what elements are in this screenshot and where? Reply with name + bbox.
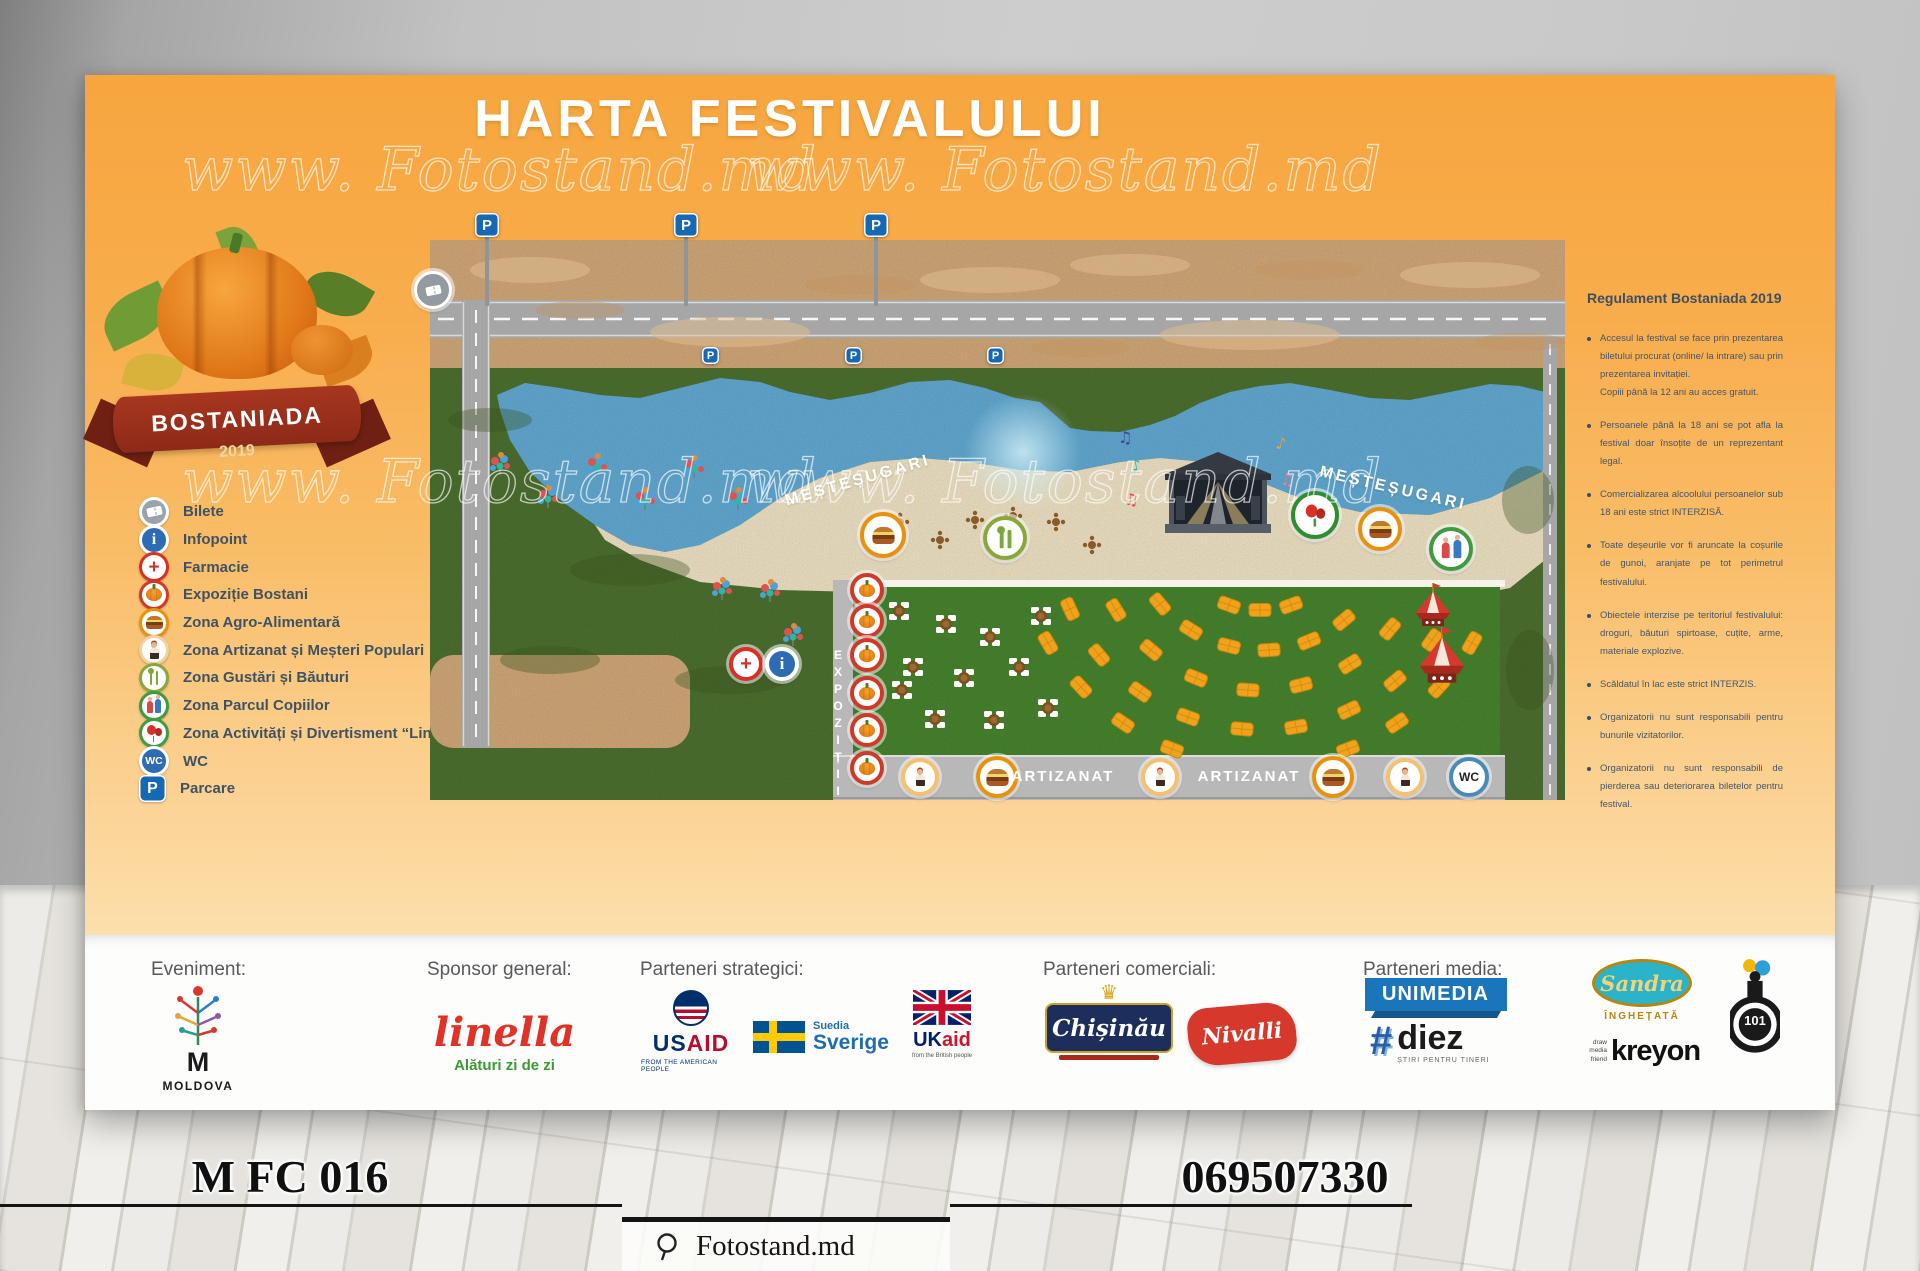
phone-number: 069507330 (1140, 1150, 1430, 1203)
unimedia-logo: UNIMEDIA (1363, 978, 1508, 1011)
sweden-flag-icon (753, 1021, 805, 1053)
legend-item-parcare: P Parcare (139, 775, 464, 803)
site-name: Fotostand.md (696, 1230, 855, 1263)
map-marker-entrance-ticket (414, 271, 452, 309)
stage-icon (1163, 448, 1273, 533)
logo-name: BOSTANIADA (151, 401, 324, 437)
diez-logo: # diez ȘTIRI PENTRU TINERI (1370, 1023, 1500, 1064)
logo-trim (1059, 1055, 1159, 1060)
map-marker-expozitie-bostani (850, 676, 884, 710)
festival-map: P P P P P P + i ARTIZANAT ARTIZ (430, 240, 1565, 800)
parking-sign: P (674, 213, 698, 237)
sponsors-strip: Eveniment: Sponsor general: Parteneri st… (85, 935, 1835, 1110)
artizanat-label: ARTIZANAT (1003, 768, 1123, 785)
section-label-strategic: Parteneri strategici: (640, 959, 804, 981)
parking-sign-small: P (702, 347, 719, 364)
legend-item-artizanat: Zona Artizanat și Meșteri Populari (139, 636, 464, 664)
sign-post (485, 234, 489, 306)
map-marker-expozitie-bostani (850, 751, 884, 785)
usaid-seal-icon (673, 990, 709, 1026)
map-marker-agro-alimentara (1358, 507, 1402, 551)
kids-icon (139, 691, 169, 721)
parking-sign-small: P (987, 347, 1004, 364)
moldova-tree-icon (170, 983, 226, 1047)
info-icon: i (139, 525, 169, 555)
rule-item: Accesul la festival se face prin prezent… (1587, 330, 1783, 402)
rule-item: Persoanele până la 18 ani se pot afla la… (1587, 417, 1783, 471)
map-marker-expozitie-bostani (850, 638, 884, 672)
rule-item: Toate deșeurile vor fi aruncate la coșur… (1587, 537, 1783, 591)
event-field (853, 585, 1500, 755)
usaid-logo: USAID FROM THE AMERICAN PEOPLE (641, 990, 741, 1073)
ticket-icon (139, 497, 169, 527)
nivalli-logo: Nivalli (1187, 1005, 1297, 1063)
sandra-logo: Sandra ÎNGHEȚATĂ (1590, 959, 1694, 1022)
map-marker-linella (1291, 491, 1339, 539)
legend-item-parcul-copiilor: Zona Parcul Copiilor (139, 692, 464, 720)
map-marker-wc: WC (1449, 757, 1489, 797)
parking-sign-small: P (845, 347, 862, 364)
bostaniada-logo: BOSTANIADA 2019 (95, 233, 380, 478)
rules-title: Regulament Bostaniada 2019 (1587, 290, 1783, 306)
hashtag-icon: # (1370, 1023, 1392, 1059)
sweden-logo: Suedia Sverige (753, 1020, 893, 1054)
balloons-icon (139, 718, 169, 748)
music-note-icon: ♫ (1280, 470, 1294, 489)
chisinau-logo: ♛ Chișinău (1043, 983, 1175, 1060)
festival-map-poster: HARTA FESTIVALULUI www. Fotostand.md www… (85, 75, 1835, 1110)
utensils-icon (139, 663, 169, 693)
map-marker-artizanat-person (1386, 758, 1424, 796)
legend-item-linella: Zona Activități și Divertisment “Linella… (139, 720, 464, 748)
map-marker-gustari-bauturi (983, 516, 1027, 560)
legend-item-expozitie: Expoziție Bostani (139, 581, 464, 609)
field-edge (848, 580, 1505, 587)
map-marker-infopoint: i (765, 647, 799, 681)
parking-sign: P (864, 213, 888, 237)
map-marker-expozitie-bostani (850, 604, 884, 638)
music-note-icon: ♫ (1124, 490, 1138, 509)
flask-icon (1730, 957, 1780, 1057)
crown-icon: ♛ (1100, 983, 1118, 1003)
pumpkin-icon (139, 580, 169, 610)
wc-icon: WC (139, 746, 169, 776)
ukaid-logo: UKaid from the British people (902, 990, 982, 1059)
map-marker-artizanat-person (1141, 758, 1179, 796)
legend-item-farmacie: + Farmacie (139, 553, 464, 581)
product-code: M FC 016 (145, 1150, 435, 1203)
map-marker-agro-alimentara (1312, 756, 1354, 798)
section-label-general: Sponsor general: (427, 959, 572, 981)
rule-item: Comercializarea alcoolului persoanelor s… (1587, 486, 1783, 522)
legend-item-wc: WC WC (139, 747, 464, 775)
parking-icon: P (139, 775, 166, 802)
moldova-logo: M MOLDOVA (143, 983, 253, 1093)
legend-item-bilete: Bilete (139, 498, 464, 526)
kreyon-logo: draw media friend kreyon (1577, 1035, 1707, 1068)
page-title: HARTA FESTIVALULUI (425, 89, 1155, 149)
rule-item: Scăldatul în lac este strict INTERZIS. (1587, 676, 1783, 694)
map-marker-artizanat-person (901, 758, 939, 796)
sign-post (874, 234, 878, 306)
sign-post (684, 234, 688, 306)
map-marker-agro-alimentara (860, 512, 906, 558)
search-icon (654, 1231, 686, 1263)
rule-item: Organizatorii nu sunt responsabili pentr… (1587, 709, 1783, 745)
legend-item-agro: Zona Agro-Alimentară (139, 609, 464, 637)
pumpkin-illustration-small (291, 325, 353, 375)
site-search-box[interactable]: Fotostand.md (622, 1217, 950, 1271)
map-marker-expozitie-bostani (850, 713, 884, 747)
section-label-event: Eveniment: (151, 959, 246, 981)
legend-item-gustari: Zona Gustări și Băuturi (139, 664, 464, 692)
linella-logo: linella Alături zi de zi (432, 1013, 577, 1074)
rule-item: Organizatorii nu sunt responsabili de pi… (1587, 760, 1783, 814)
rule-item: Obiectele interzise pe teritoriul festiv… (1587, 607, 1783, 661)
map-legend: Bilete i Infopoint + Farmacie Expoziție … (139, 498, 464, 803)
uk-flag-icon (913, 990, 971, 1025)
map-marker-parcul-copiilor (1429, 527, 1473, 571)
rules-panel: Regulament Bostaniada 2019 Accesul la fe… (1587, 290, 1783, 829)
club101-logo: 101 (1730, 957, 1780, 1062)
artizanat-label: ARTIZANAT (1189, 768, 1309, 785)
expozitii-label: EXPOZIȚII (831, 648, 845, 788)
parking-sign: P (475, 213, 499, 237)
lake-glow (965, 394, 1081, 510)
food-icon (139, 608, 169, 638)
legend-item-infopoint: i Infopoint (139, 526, 464, 554)
craftsman-icon (139, 635, 169, 665)
map-marker-expozitie-bostani (850, 573, 884, 607)
map-marker-farmacie: + (729, 647, 763, 681)
pharmacy-icon: + (139, 552, 169, 582)
section-label-commercial: Parteneri comerciali: (1043, 959, 1216, 981)
music-note-icon: ♫ (1118, 428, 1132, 447)
divider-line (950, 1204, 1412, 1207)
divider-line (0, 1204, 622, 1207)
